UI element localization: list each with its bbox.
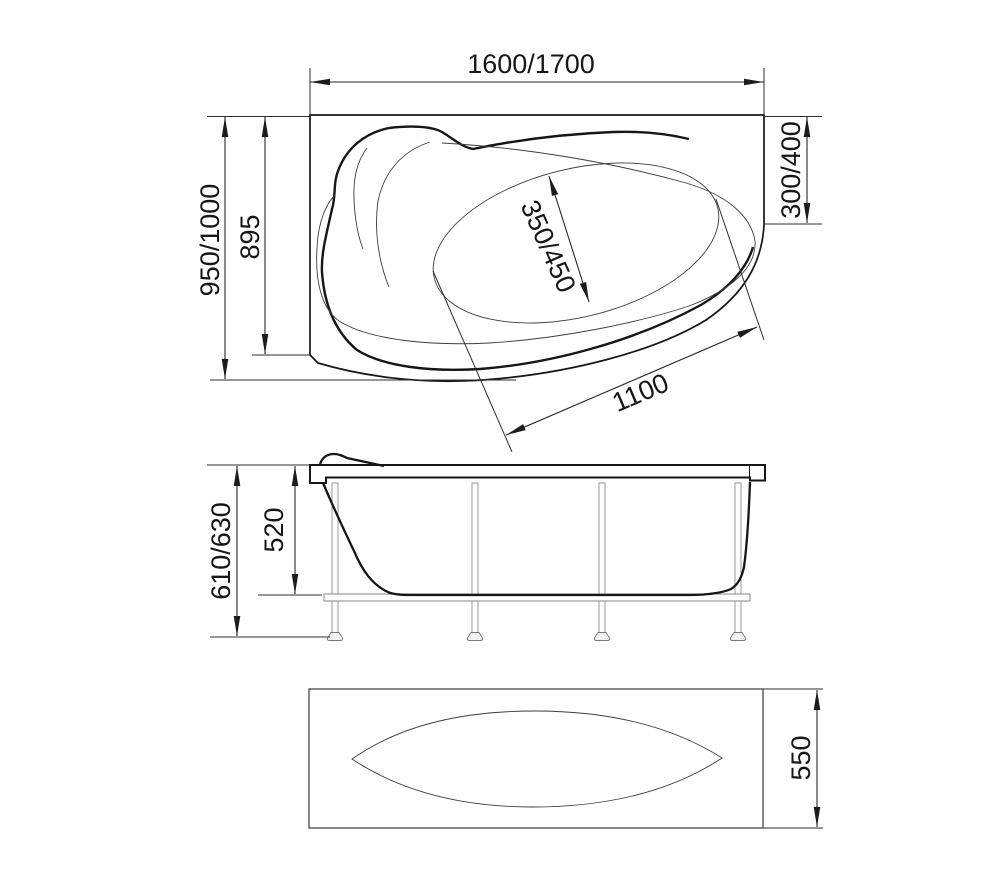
frame-leg	[735, 483, 741, 634]
tub-shell-profile	[323, 482, 750, 595]
rim-deck	[310, 465, 765, 483]
drawing-canvas: 1600/1700 950/1000 895 300/400 350/450 1…	[0, 0, 997, 886]
dimension-label-width: 1600/1700	[467, 49, 595, 79]
frame-leg	[472, 483, 478, 634]
dimension-label-side: 300/400	[776, 121, 806, 219]
frame-foot	[594, 633, 609, 641]
frame-foot	[730, 633, 745, 641]
frame-foot	[467, 633, 482, 641]
bathtub-technical-drawing: 1600/1700 950/1000 895 300/400 350/450 1…	[0, 0, 997, 886]
front-view: 610/630 520	[206, 454, 765, 641]
dimension-label-depth-inner: 895	[235, 214, 265, 259]
dimension-label-panel-height: 550	[786, 735, 816, 780]
dimension-label-depth: 950/1000	[195, 184, 225, 297]
dimension-label-height-shell: 520	[259, 507, 289, 552]
panel-view: 550	[309, 689, 823, 828]
frame-leg	[599, 483, 605, 634]
top-view: 1600/1700 950/1000 895 300/400 350/450 1…	[195, 49, 822, 452]
dimension-label-diagonal: 1100	[608, 368, 673, 418]
dimension-label-height-total: 610/630	[206, 502, 236, 600]
